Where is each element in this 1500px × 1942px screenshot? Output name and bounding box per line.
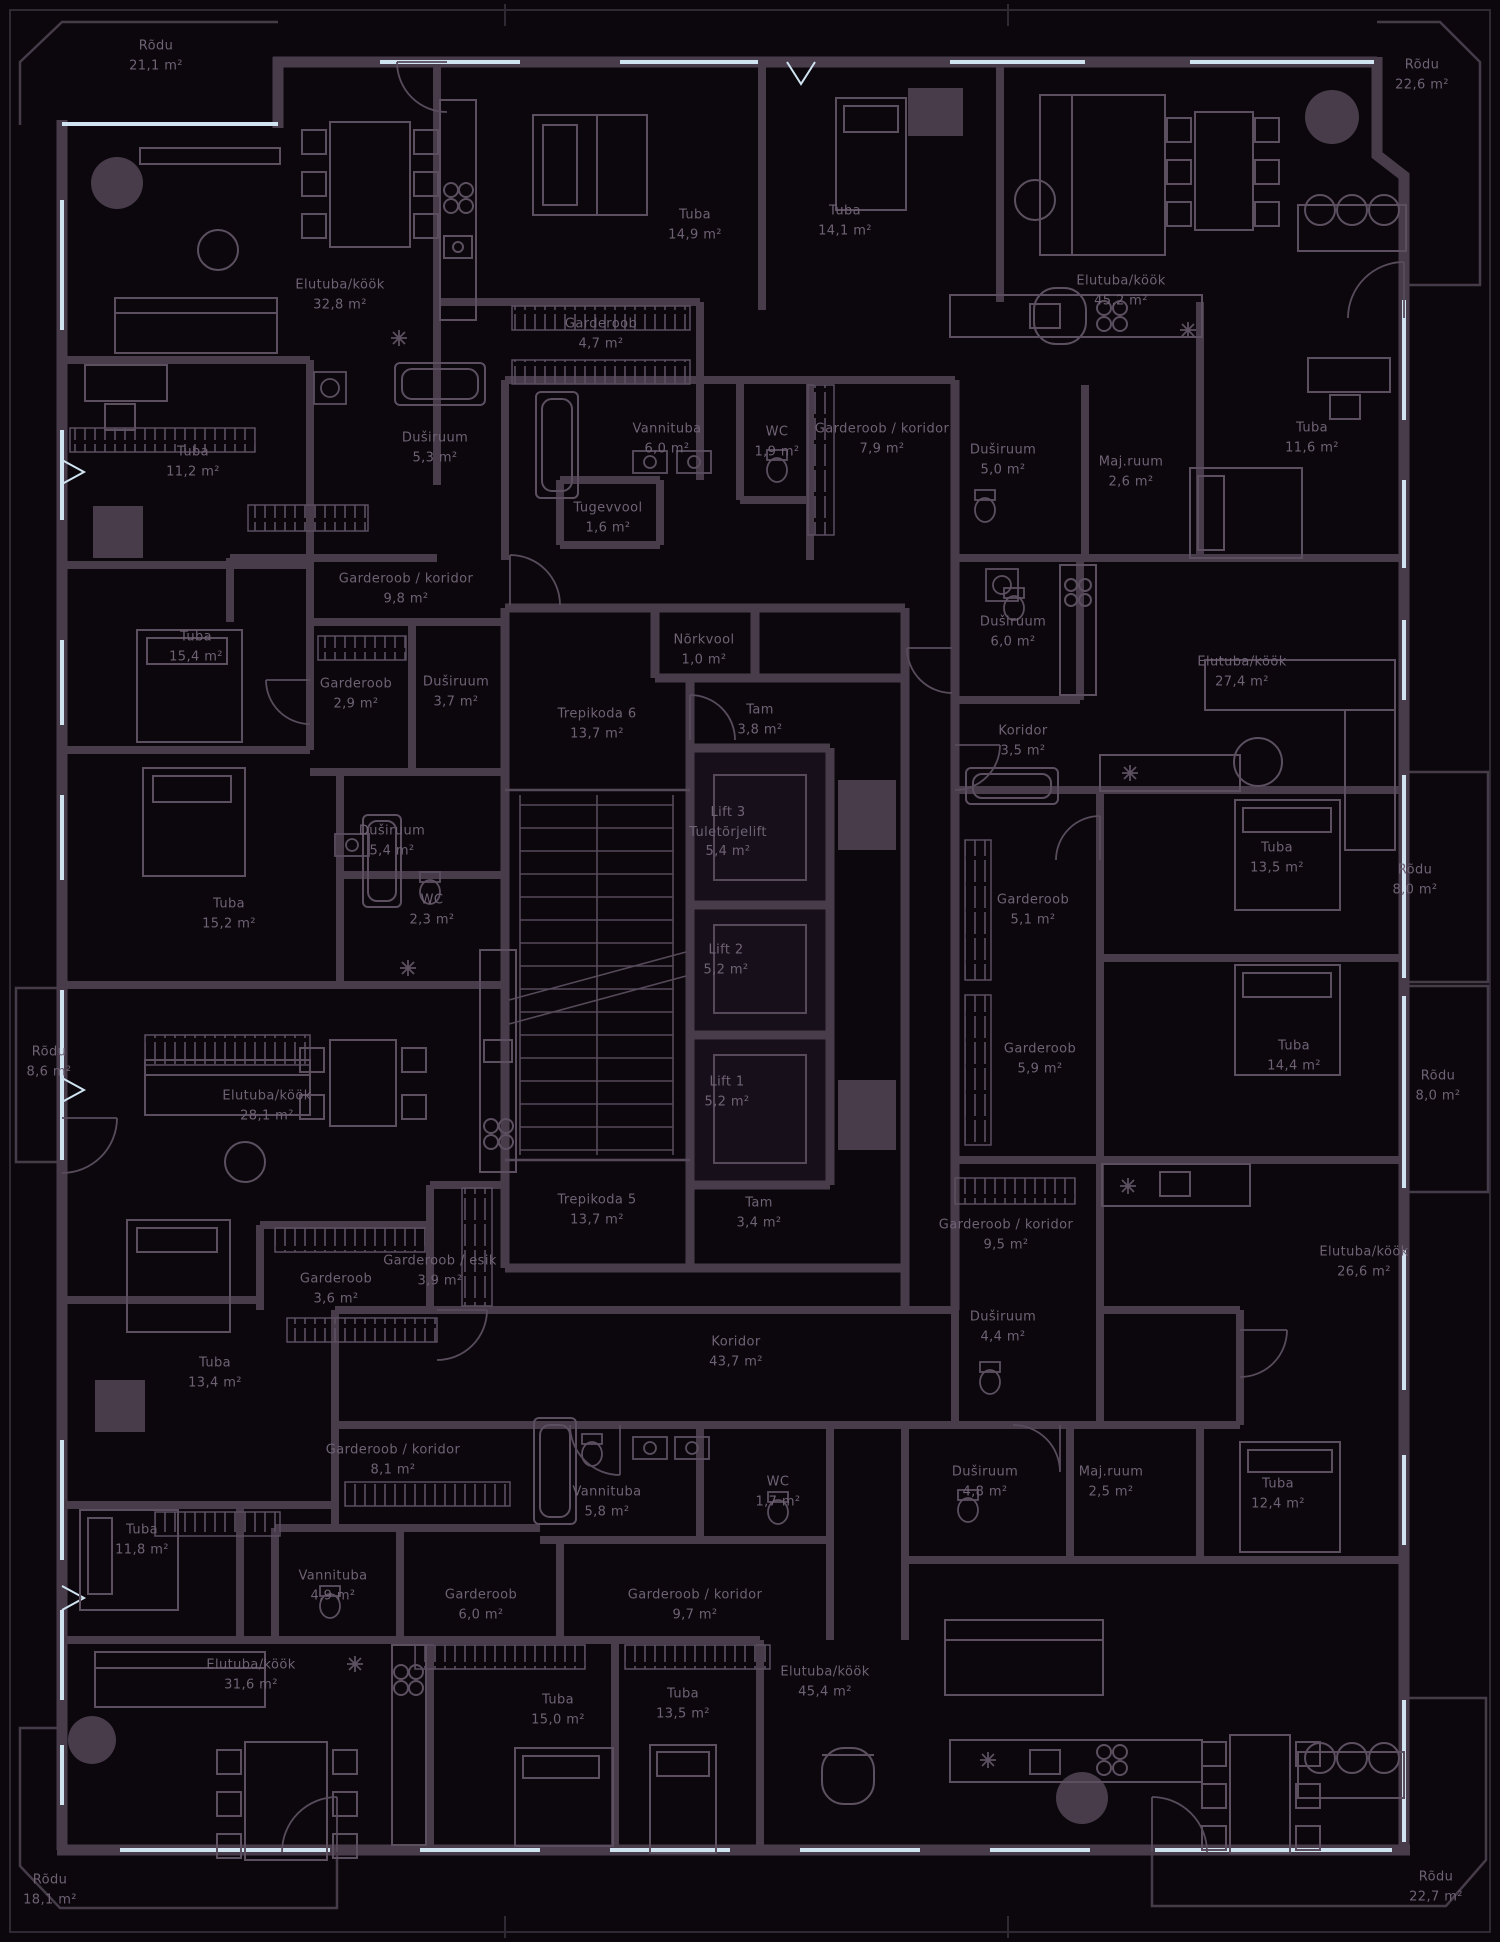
lift-shafts [694,752,826,1181]
stairs [505,790,690,1160]
floor-plan: Rõdu21,1 m²Rõdu22,6 m²Elutuba/köök32,8 m… [0,0,1500,1942]
floor-plan-drawing [0,0,1500,1942]
